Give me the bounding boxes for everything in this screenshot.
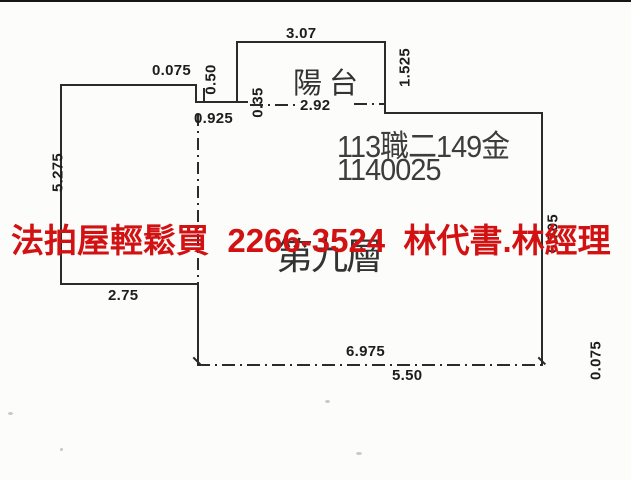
dim-balcony-height: 1.525: [397, 45, 414, 91]
dim-gap-035: 0.35: [250, 80, 267, 126]
scan-speck: [8, 412, 13, 415]
dim-balcony-width: 3.07: [286, 25, 316, 42]
wall-main-top: [384, 112, 543, 114]
wall-balcony-left: [236, 41, 238, 103]
dim-bottom-inner: 5.50: [392, 367, 422, 384]
boundary-line-under-balcony-b: [354, 103, 386, 105]
scan-speck: [60, 448, 63, 451]
dim-top-left-offset: 0.075: [152, 62, 191, 79]
floorplan-scan: 3.07 0.075 0.50 0.925 0.35 2.92 1.525 5.…: [0, 0, 631, 480]
ad-watermark-text: 法拍屋輕鬆買 2266-3524 林代書.林經理: [11, 214, 611, 262]
dim-left-bottom-width: 2.75: [108, 287, 138, 304]
dim-step-height: 0.50: [203, 57, 220, 103]
dim-right-bottom-offset: 0.075: [588, 338, 605, 384]
dim-bottom-outer: 6.975: [346, 343, 385, 360]
dim-entry-width: 0.925: [194, 110, 233, 127]
wall-leftblock-bottom: [60, 283, 199, 285]
scan-speck: [356, 452, 362, 455]
boundary-line-bottom: [197, 364, 543, 366]
dim-left-height: 5.275: [50, 150, 67, 196]
wall-mid-lower: [197, 283, 199, 366]
scan-top-edge: [0, 0, 631, 2]
scan-speck: [325, 400, 330, 403]
case-number-line2: 1140025: [337, 152, 441, 188]
wall-leftblock-top: [60, 84, 197, 86]
balcony-label: 陽台: [293, 60, 365, 102]
